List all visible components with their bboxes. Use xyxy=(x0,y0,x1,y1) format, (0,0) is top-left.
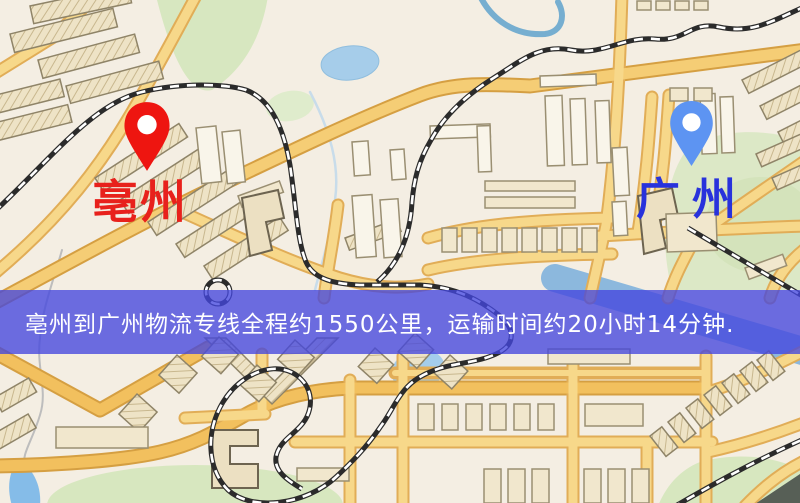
map-view: 亳州 广州 亳州到广州物流专线全程约1550公里，运输时间约20小时14分钟. xyxy=(0,0,800,503)
destination-pin[interactable] xyxy=(667,99,716,168)
origin-label: 亳州 xyxy=(84,178,196,226)
map-pin-icon xyxy=(121,100,173,173)
route-info-banner: 亳州到广州物流专线全程约1550公里，运输时间约20小时14分钟. xyxy=(0,290,800,354)
map-pin-icon xyxy=(667,99,716,168)
map-canvas xyxy=(0,0,800,503)
destination-label: 广州 xyxy=(630,177,754,223)
origin-pin[interactable] xyxy=(121,100,173,173)
route-info-text: 亳州到广州物流专线全程约1550公里，运输时间约20小时14分钟. xyxy=(0,305,734,339)
